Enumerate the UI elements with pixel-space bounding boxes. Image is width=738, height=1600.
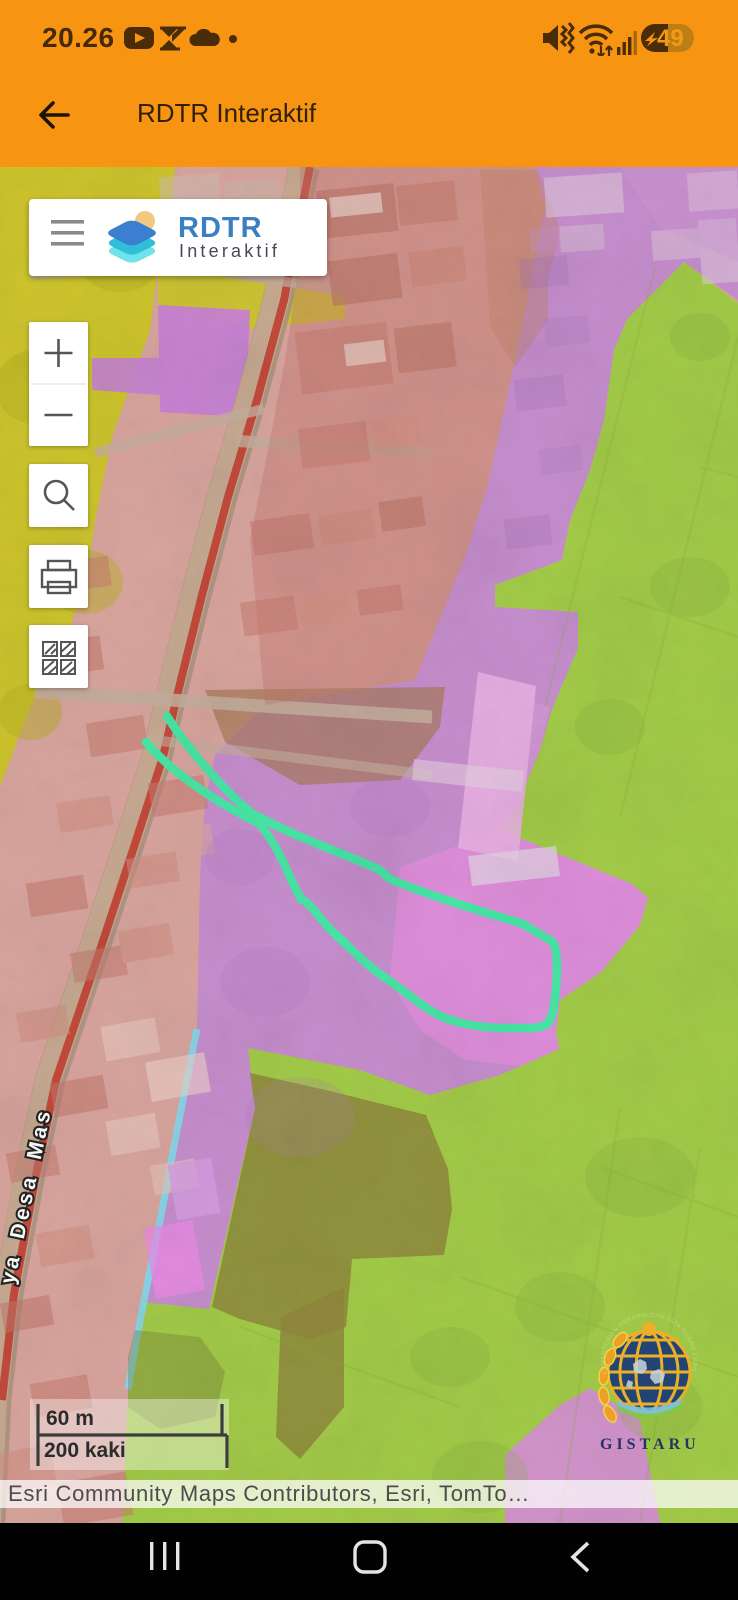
svg-text:49: 49 — [657, 25, 684, 52]
svg-text:GISTARU: GISTARU — [600, 1436, 700, 1453]
